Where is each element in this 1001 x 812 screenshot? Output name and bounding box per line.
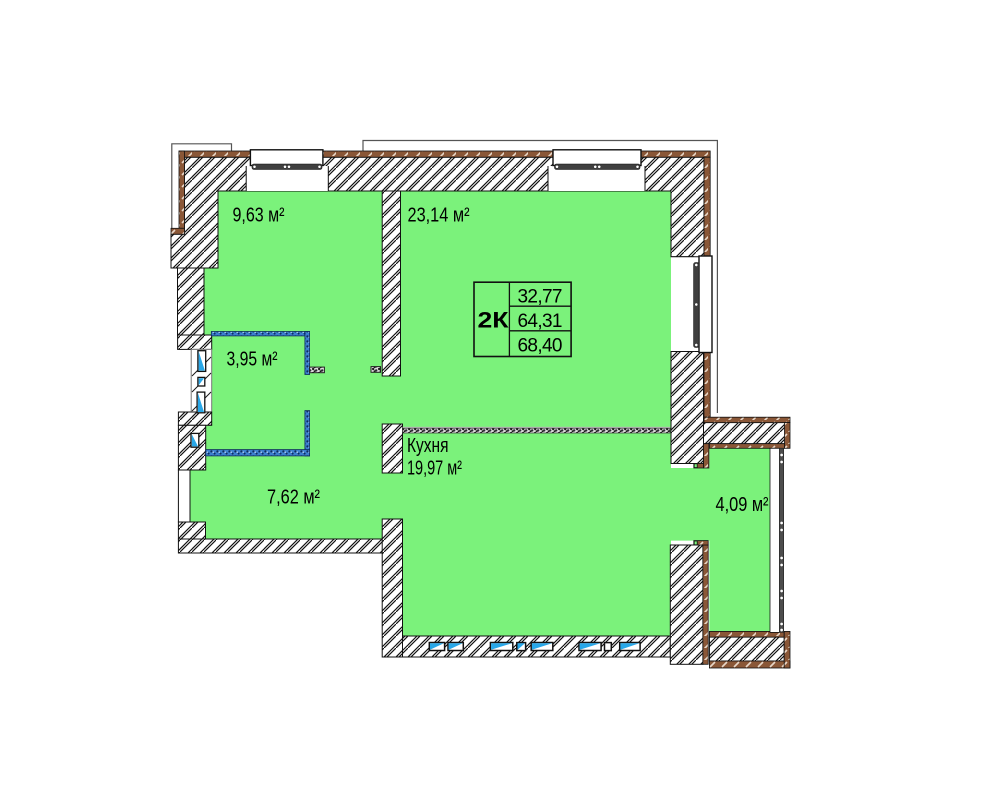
- svg-text:7,62 м²: 7,62 м²: [267, 487, 320, 509]
- svg-text:2К: 2К: [478, 308, 510, 333]
- svg-text:32,77: 32,77: [518, 286, 563, 307]
- svg-text:68,40: 68,40: [518, 335, 563, 356]
- svg-text:3,95 м²: 3,95 м²: [227, 349, 278, 371]
- svg-text:4,09 м²: 4,09 м²: [716, 494, 769, 516]
- svg-text:Кухня: Кухня: [407, 435, 449, 457]
- svg-text:9,63 м²: 9,63 м²: [233, 205, 285, 227]
- svg-text:64,31: 64,31: [518, 311, 563, 332]
- svg-text:23,14 м²: 23,14 м²: [408, 205, 470, 227]
- svg-text:19,97 м²: 19,97 м²: [407, 458, 462, 480]
